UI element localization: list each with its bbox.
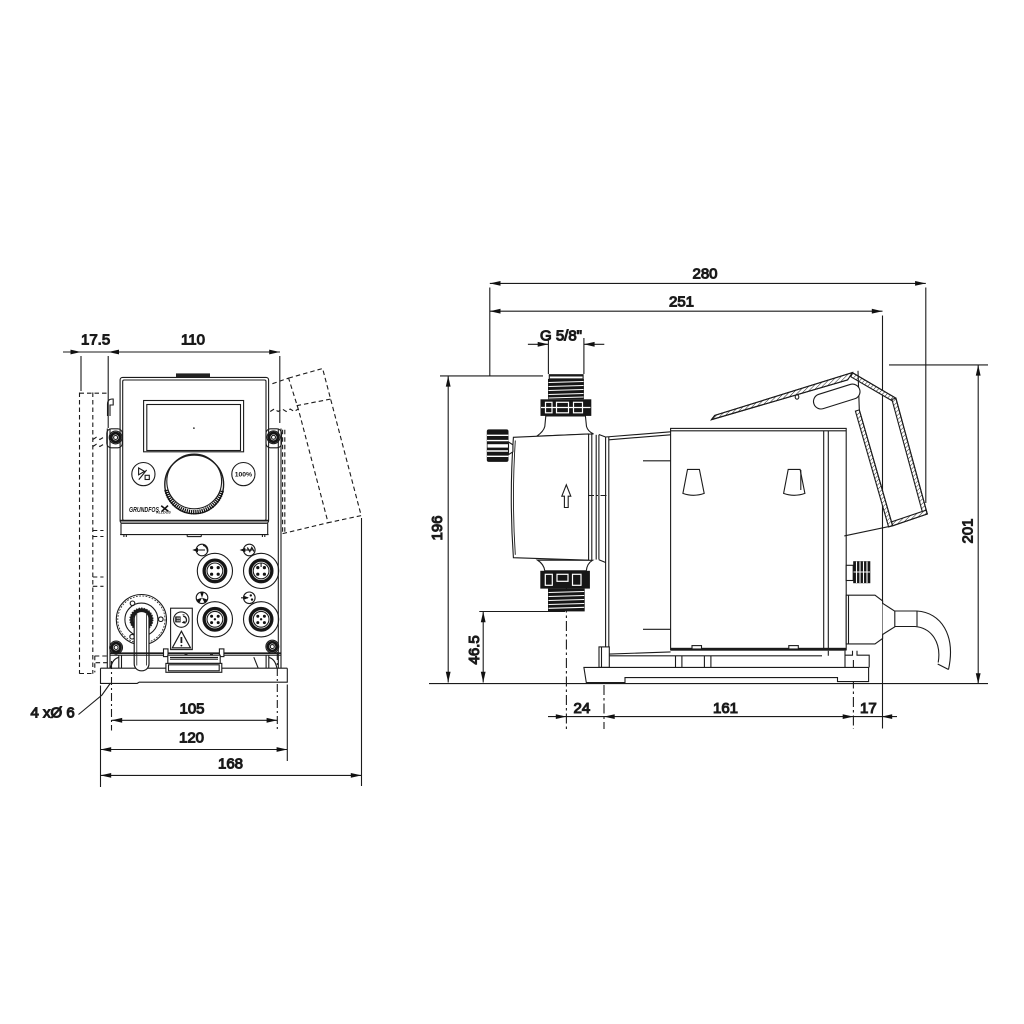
svg-text:24: 24 bbox=[574, 700, 591, 717]
svg-text:105: 105 bbox=[180, 701, 205, 718]
svg-text:17: 17 bbox=[860, 700, 877, 717]
svg-text:280: 280 bbox=[693, 266, 718, 283]
svg-text:46.5: 46.5 bbox=[466, 635, 483, 664]
svg-text:120: 120 bbox=[179, 730, 204, 747]
svg-text:201: 201 bbox=[960, 518, 977, 543]
svg-text:100%: 100% bbox=[235, 472, 252, 479]
svg-text:168: 168 bbox=[218, 756, 243, 773]
svg-text:G 5/8": G 5/8" bbox=[540, 328, 582, 345]
svg-text:251: 251 bbox=[669, 294, 694, 311]
svg-text:GRUNDFOS: GRUNDFOS bbox=[129, 507, 159, 514]
svg-text:161: 161 bbox=[713, 700, 738, 717]
svg-text:17.5: 17.5 bbox=[81, 332, 110, 349]
svg-text:4 xØ 6: 4 xØ 6 bbox=[31, 705, 75, 722]
svg-text:ALLDOS: ALLDOS bbox=[155, 510, 171, 514]
svg-text:110: 110 bbox=[181, 332, 205, 349]
svg-text:196: 196 bbox=[429, 515, 446, 540]
